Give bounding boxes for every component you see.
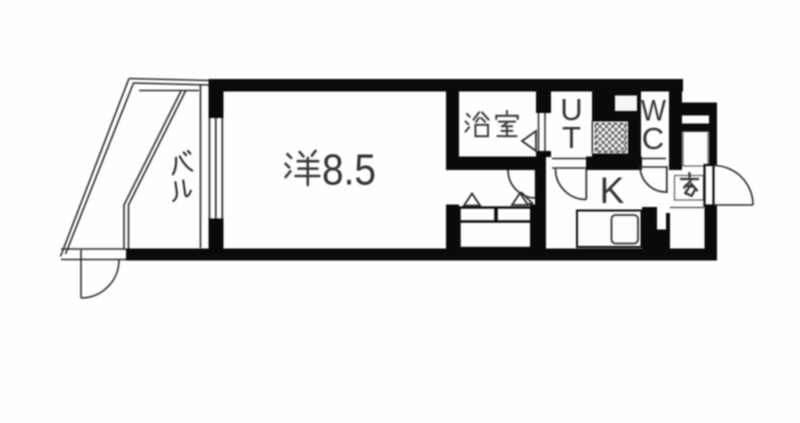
svg-text:K: K [600, 170, 625, 211]
svg-text:8.5: 8.5 [322, 147, 376, 195]
svg-text:C: C [642, 121, 664, 156]
svg-text:T: T [562, 120, 581, 155]
